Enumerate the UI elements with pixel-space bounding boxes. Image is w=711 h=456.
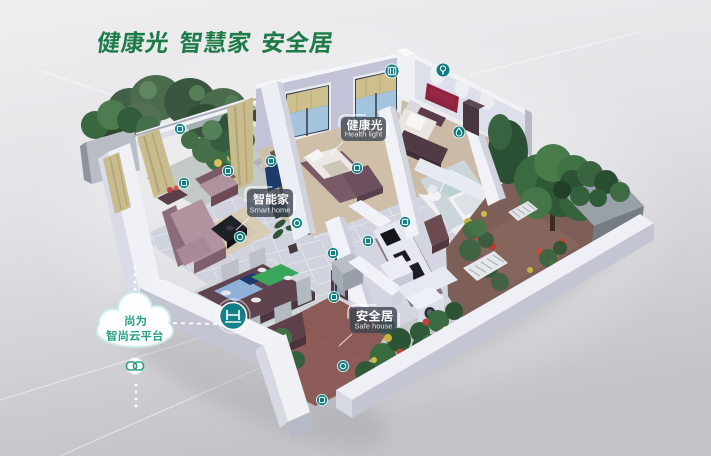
svg-text:Health light: Health light — [345, 130, 383, 139]
svg-text:Smart home: Smart home — [250, 206, 291, 215]
svg-text:Safe house: Safe house — [355, 322, 393, 331]
